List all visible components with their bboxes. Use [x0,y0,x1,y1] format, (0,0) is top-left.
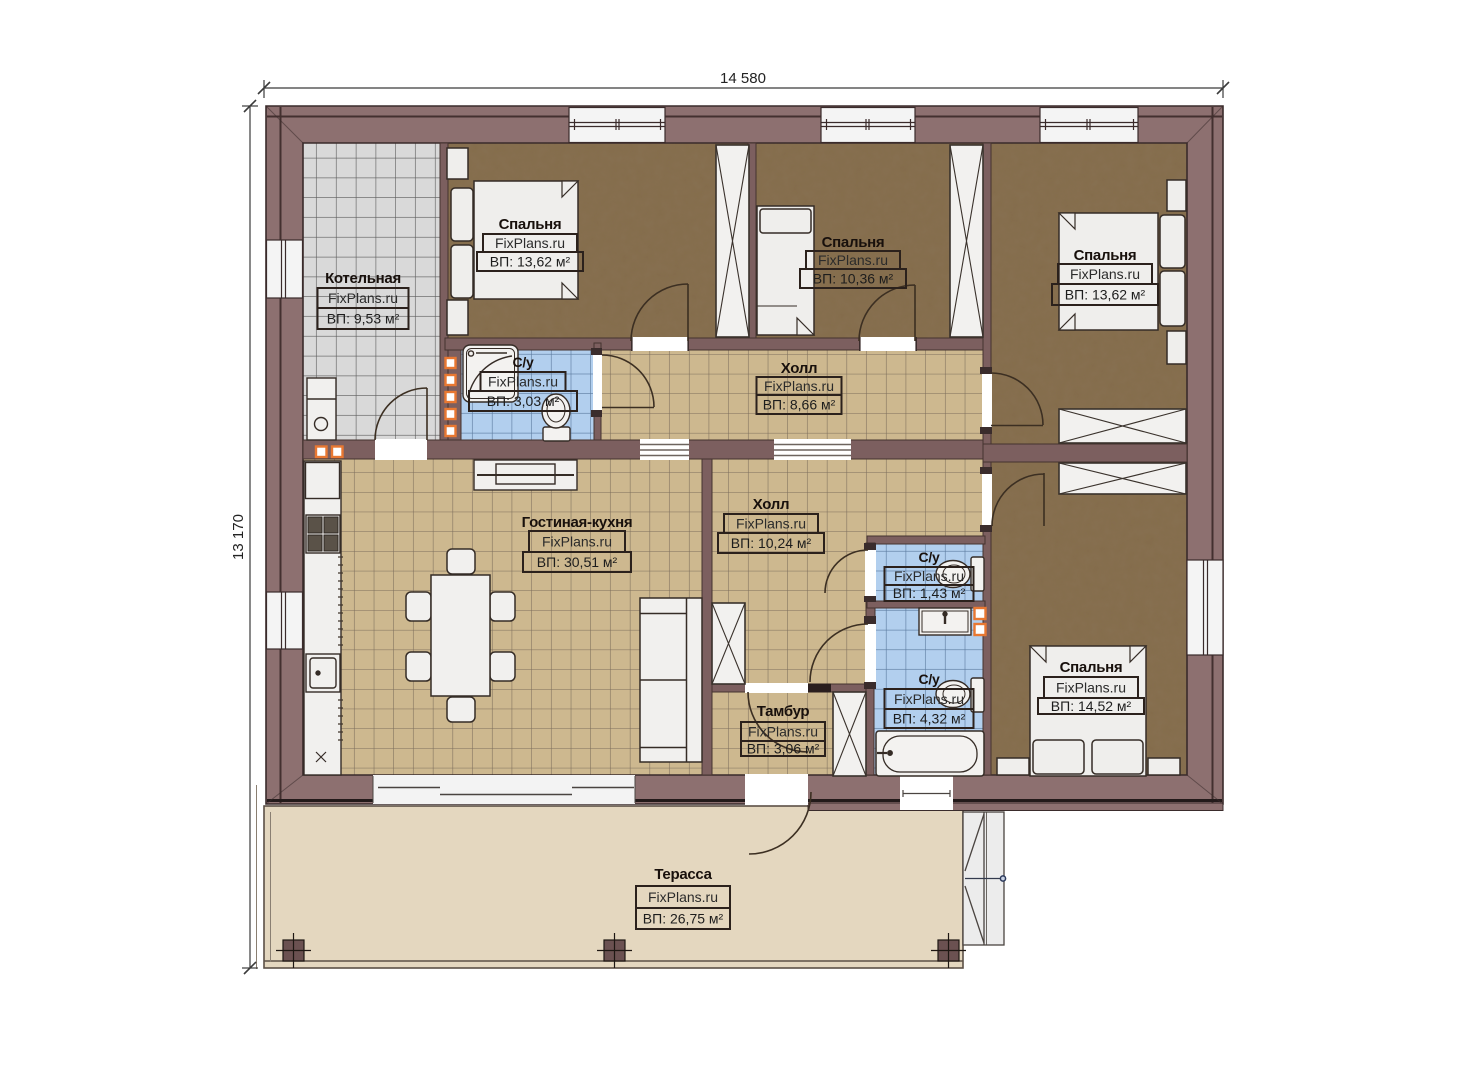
svg-text:FixPlans.ru: FixPlans.ru [894,691,964,707]
svg-text:FixPlans.ru: FixPlans.ru [736,516,806,532]
svg-text:ВП: 26,75 м²: ВП: 26,75 м² [643,911,724,927]
svg-text:С/у: С/у [919,549,940,565]
svg-text:ВП: 3,03 м²: ВП: 3,03 м² [487,393,560,409]
svg-text:FixPlans.ru: FixPlans.ru [542,534,612,550]
svg-text:Тамбур: Тамбур [757,703,810,720]
svg-text:ВП: 30,51 м²: ВП: 30,51 м² [537,554,618,570]
svg-text:FixPlans.ru: FixPlans.ru [764,378,834,394]
svg-text:Холл: Холл [781,360,817,377]
svg-text:FixPlans.ru: FixPlans.ru [818,252,888,268]
svg-text:FixPlans.ru: FixPlans.ru [495,235,565,251]
svg-text:Спальня: Спальня [499,216,562,233]
svg-text:С/у: С/у [919,671,940,687]
svg-text:14 580: 14 580 [720,70,766,87]
svg-text:ВП: 10,24 м²: ВП: 10,24 м² [731,535,812,551]
svg-text:13 170: 13 170 [230,514,247,560]
svg-text:FixPlans.ru: FixPlans.ru [748,724,818,740]
svg-text:ВП: 13,62 м²: ВП: 13,62 м² [490,254,571,270]
svg-text:ВП: 4,32 м²: ВП: 4,32 м² [893,711,966,727]
svg-text:FixPlans.ru: FixPlans.ru [894,568,964,584]
svg-text:FixPlans.ru: FixPlans.ru [1056,680,1126,696]
svg-text:Холл: Холл [753,496,789,513]
svg-text:ВП: 9,53 м²: ВП: 9,53 м² [327,311,400,327]
svg-text:ВП: 14,52 м²: ВП: 14,52 м² [1051,698,1132,714]
svg-text:FixPlans.ru: FixPlans.ru [488,374,558,390]
svg-text:ВП: 8,66 м²: ВП: 8,66 м² [763,397,836,413]
svg-text:FixPlans.ru: FixPlans.ru [648,889,718,905]
svg-text:ВП: 13,62 м²: ВП: 13,62 м² [1065,287,1146,303]
svg-text:ВП: 1,43 м²: ВП: 1,43 м² [893,585,966,601]
svg-text:Терасса: Терасса [654,866,712,883]
svg-text:Спальня: Спальня [1060,659,1123,676]
svg-text:Гостиная-кухня: Гостиная-кухня [522,514,633,531]
svg-text:Котельная: Котельная [325,270,401,287]
svg-text:Спальня: Спальня [822,234,885,251]
svg-text:ВП: 3,06 м²: ВП: 3,06 м² [747,741,820,757]
svg-text:ВП: 10,36 м²: ВП: 10,36 м² [813,271,894,287]
svg-text:FixPlans.ru: FixPlans.ru [1070,266,1140,282]
svg-text:Спальня: Спальня [1074,247,1137,264]
svg-text:FixPlans.ru: FixPlans.ru [328,290,398,306]
svg-text:С/у: С/у [513,354,534,370]
